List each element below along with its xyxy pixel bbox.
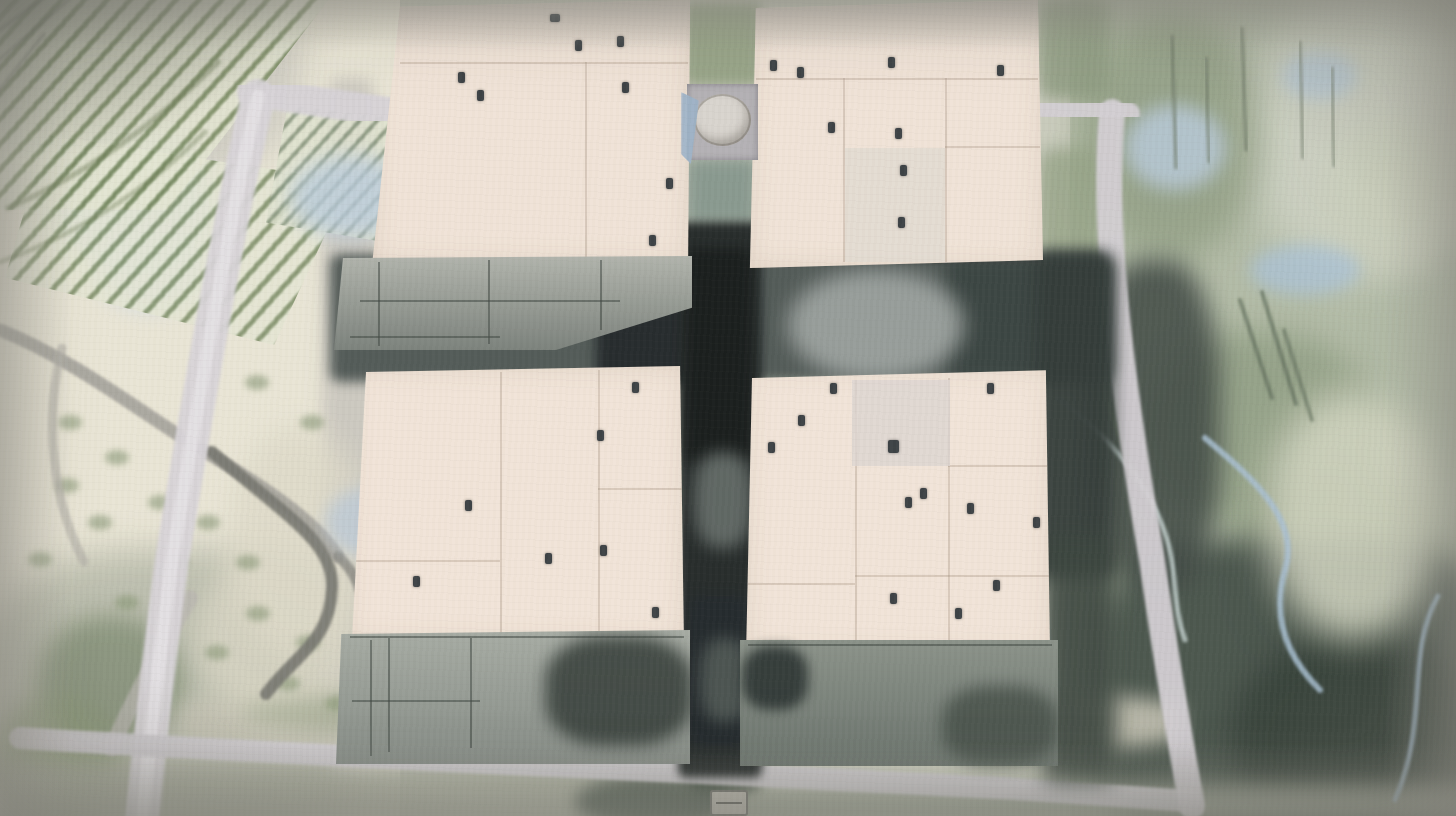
paint-stroke <box>8 62 218 208</box>
facade-line <box>370 640 372 756</box>
terrain-patch <box>1090 260 1220 590</box>
roof-panel-line <box>855 575 1052 577</box>
shadow-patch <box>1042 536 1116 784</box>
terrain-patch <box>575 775 735 816</box>
shadow-patch <box>690 596 748 746</box>
rooftop-vent <box>797 67 804 78</box>
building-bottom-right-facade <box>740 640 1058 766</box>
paint-stroke <box>53 348 84 562</box>
terrain-patch <box>0 695 120 816</box>
shrub <box>245 375 269 390</box>
terrain-patch <box>684 2 762 86</box>
paint-stroke <box>0 0 52 34</box>
shadow-patch <box>700 638 750 722</box>
roof-panel-line <box>948 378 950 650</box>
facade-line <box>748 644 1052 646</box>
rooftop-vent <box>550 14 560 22</box>
paint-stroke <box>212 452 332 694</box>
rooftop-vent <box>890 593 897 604</box>
terrain-patch <box>0 765 760 816</box>
roof-panel-line <box>948 465 1052 467</box>
paint-strokes-layer <box>0 0 1456 816</box>
rooftop-vent <box>770 60 777 71</box>
roof-panel-line <box>945 146 1040 148</box>
shrub <box>205 645 229 660</box>
terrain-patch <box>1100 540 1456 816</box>
gate-inner-line <box>716 802 742 804</box>
rooftop-vent <box>617 36 624 47</box>
shrub <box>115 595 139 610</box>
rooftop-vent <box>828 122 835 133</box>
facade-shadow-blob <box>545 636 693 746</box>
sketch-vignette-overlay <box>0 0 1456 816</box>
paint-strokes-svg <box>0 0 1456 816</box>
striped-field <box>0 0 340 210</box>
facade-line <box>600 260 602 330</box>
shrub <box>28 552 52 567</box>
shrub <box>196 515 220 530</box>
facade-shadow-blob <box>942 686 1058 766</box>
building-bottom-right-roof <box>742 364 1054 656</box>
rooftop-vent <box>666 178 673 189</box>
pond-water-oval <box>694 94 751 146</box>
building-top-right <box>746 0 1046 270</box>
terrain-wash-layer <box>0 0 1456 816</box>
facade-line <box>350 336 500 338</box>
shrub <box>148 495 172 510</box>
shadow-patch <box>386 260 482 322</box>
shrub <box>88 515 112 530</box>
roof-panel-line <box>855 380 857 650</box>
paint-stroke <box>20 738 1190 801</box>
facade-line <box>378 262 380 346</box>
paint-stroke <box>252 92 402 114</box>
striped-field <box>5 135 350 345</box>
terrain-patch <box>1080 10 1260 260</box>
paint-stroke <box>1206 58 1209 162</box>
paint-stroke <box>1284 330 1312 420</box>
building-top-right-roof <box>746 0 1046 270</box>
terrain-patch <box>1140 330 1380 530</box>
building-bottom-left <box>344 364 688 644</box>
shrub <box>105 450 129 465</box>
terrain-patch <box>1250 245 1360 295</box>
rooftop-vent <box>900 165 907 176</box>
paint-stroke <box>1172 36 1176 168</box>
rooftop-vent <box>895 128 902 139</box>
shrub <box>58 415 82 430</box>
rooftop-vent <box>920 488 927 499</box>
rooftop-vent <box>955 608 962 619</box>
roof-panel-line <box>500 372 502 638</box>
terrain-patch <box>0 550 370 816</box>
details-layer <box>0 0 1456 816</box>
pond-blue-wedge <box>681 92 699 164</box>
rooftop-vent <box>768 442 775 453</box>
rooftop-vent <box>458 72 465 83</box>
shadow-patch <box>1034 252 1114 578</box>
paint-stroke <box>1240 300 1272 398</box>
terrain-patch <box>1240 0 1456 280</box>
rooftop-vent <box>987 383 994 394</box>
terrain-patch <box>1320 120 1456 270</box>
rooftop-vent <box>465 500 472 511</box>
paint-stroke <box>1109 112 1192 806</box>
facade-line <box>488 260 490 344</box>
terrain-patch <box>1282 52 1357 100</box>
rooftop-vent <box>898 217 905 228</box>
building-bottom-left-roof <box>344 364 688 644</box>
rooftop-vent <box>905 497 912 508</box>
terrain-patch <box>1070 0 1456 816</box>
terrain-patch <box>195 550 365 720</box>
terrain-patch <box>35 615 185 750</box>
paper-texture-overlay <box>0 0 1456 816</box>
roof-panel-line <box>843 78 845 262</box>
paint-stroke <box>0 330 338 556</box>
roof-panel-line <box>945 78 947 262</box>
terrain-patch <box>240 692 630 734</box>
rooftop-vent <box>967 503 974 514</box>
terrain-patch <box>1125 105 1225 190</box>
paint-stroke <box>0 132 205 262</box>
rooftop-vent <box>575 40 582 51</box>
terrain-patch <box>95 220 210 310</box>
terrain-patch <box>52 145 217 270</box>
shadow-patch <box>694 452 752 548</box>
rooftop-vent <box>413 576 420 587</box>
shadow-patch <box>944 258 1112 380</box>
roof-panel-line <box>598 370 600 637</box>
paint-stroke <box>1332 68 1334 166</box>
shrub <box>236 555 260 570</box>
aerial-scene <box>0 0 1456 816</box>
terrain-patch <box>690 786 1456 816</box>
facade-line <box>360 300 620 302</box>
rooftop-vent <box>649 235 656 246</box>
rooftop-vent <box>622 82 629 93</box>
facade-line <box>350 636 684 638</box>
roof-panel <box>852 380 950 466</box>
terrain-patch <box>1038 0 1110 100</box>
roof-panel-line <box>756 78 1038 80</box>
building-top-left-facade <box>334 256 692 350</box>
paint-stroke <box>0 0 80 64</box>
building-bottom-right <box>742 364 1054 656</box>
paint-stroke <box>1395 596 1438 800</box>
rooftop-vent <box>993 580 1000 591</box>
shrub <box>296 635 320 650</box>
paint-stroke <box>1042 106 1128 114</box>
rooftop-vent <box>997 65 1004 76</box>
terrain-patch <box>1230 630 1456 816</box>
building-top-left <box>370 0 692 266</box>
terrain-patch <box>180 688 1180 756</box>
facade-shadow-blob <box>742 646 808 710</box>
shadow-patch <box>686 248 752 462</box>
terrain-patch <box>684 156 760 228</box>
rooftop-vent <box>632 382 639 393</box>
shrub <box>300 415 324 430</box>
shrub <box>165 555 189 570</box>
shrub <box>246 606 270 621</box>
building-bottom-left-facade <box>336 630 690 764</box>
rooftop-vent <box>1033 517 1040 528</box>
shadow-patch <box>325 488 413 556</box>
shadow-patch <box>678 222 762 778</box>
shadow-patch <box>596 260 700 382</box>
roof-panel-line <box>598 488 684 490</box>
paint-stroke <box>0 34 44 96</box>
building-top-left-roof <box>370 0 692 266</box>
rooftop-vent <box>798 415 805 426</box>
striped-field <box>266 105 421 245</box>
roof-shaded-band <box>370 0 692 56</box>
terrain-patch <box>0 0 300 180</box>
gate-structure <box>710 790 748 816</box>
facade-line <box>470 638 472 748</box>
facade-line <box>388 638 390 752</box>
paint-stroke <box>142 96 258 816</box>
terrain-patch <box>322 78 380 768</box>
rooftop-vent <box>830 383 837 394</box>
roof-panel-line <box>585 62 587 258</box>
paint-stroke <box>1205 438 1320 690</box>
rooftop-vent <box>597 430 604 441</box>
paint-stroke <box>1242 28 1246 150</box>
terrain-patch <box>1265 390 1445 640</box>
paint-stroke <box>1058 398 1185 640</box>
terrain-patch <box>0 0 400 816</box>
shadow-patch <box>788 270 964 380</box>
roof-panel <box>845 148 945 262</box>
rooftop-vent <box>545 553 552 564</box>
paint-stroke <box>1300 42 1303 158</box>
rooftop-vent <box>888 440 899 453</box>
pond-basin <box>687 84 758 160</box>
shadow-band-layer <box>0 0 1456 816</box>
shrub <box>325 696 349 711</box>
shadow-patch <box>752 258 1044 264</box>
buildings-layer <box>0 0 1456 816</box>
farmland-fields-layer <box>0 0 1456 816</box>
paint-stroke <box>112 598 190 748</box>
rooftop-vent <box>600 545 607 556</box>
rooftop-vent <box>652 607 659 618</box>
shrub <box>55 478 79 493</box>
roof-panel-line <box>748 583 855 585</box>
paint-stroke <box>338 556 363 646</box>
paint-stroke <box>1036 560 1060 690</box>
shrub <box>276 676 300 691</box>
roof-panel-line <box>400 62 688 64</box>
paint-stroke <box>1262 292 1296 404</box>
roof-shaded-band <box>746 0 1046 54</box>
rooftop-vent <box>477 90 484 101</box>
rooftop-vent <box>888 57 895 68</box>
terrain-patch <box>688 754 762 792</box>
roof-panel-line <box>352 560 500 562</box>
terrain-patch <box>1230 470 1450 690</box>
terrain-patch <box>1038 148 1106 278</box>
shadow-patch <box>330 254 1108 382</box>
terrain-patch <box>228 425 368 655</box>
facade-line <box>352 700 480 702</box>
shadow-patch <box>290 156 412 238</box>
paint-stroke <box>1102 388 1134 478</box>
paint-stroke <box>142 96 258 816</box>
